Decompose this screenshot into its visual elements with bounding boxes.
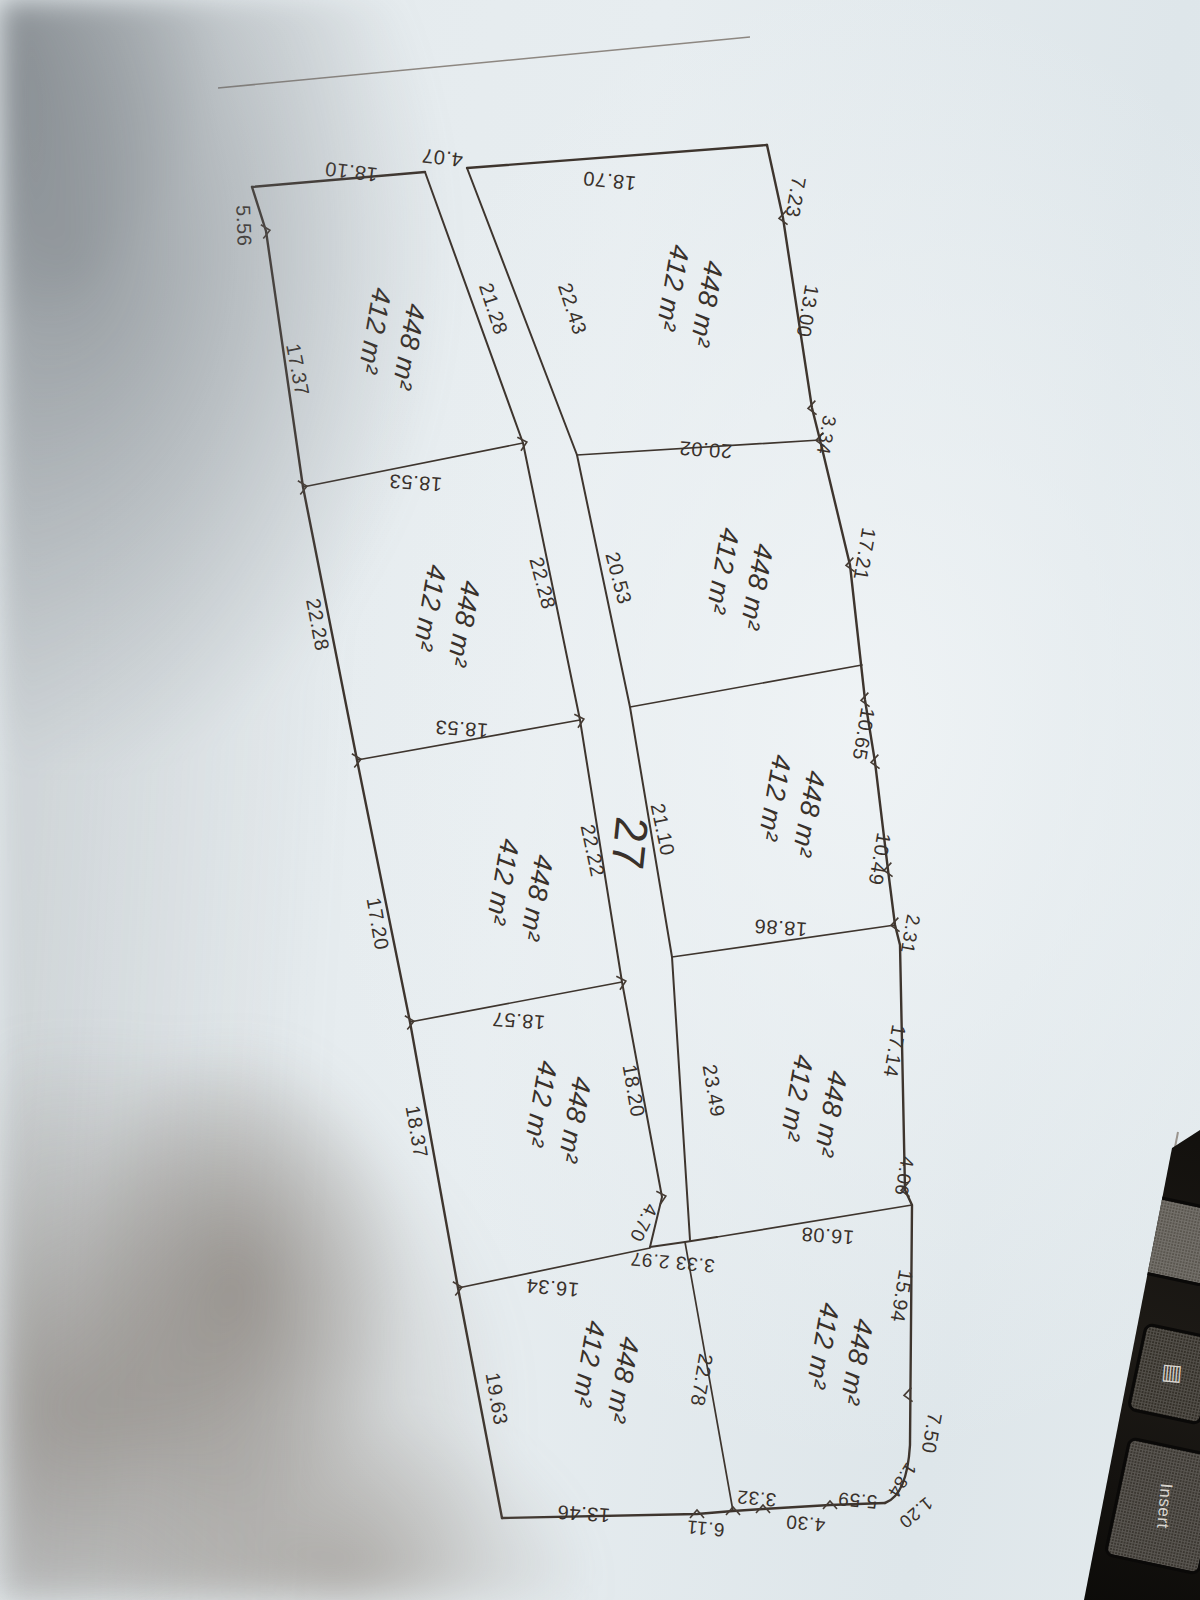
dimension-label: 10.49 xyxy=(864,831,895,887)
menu-key-icon: ▤ xyxy=(1159,1363,1187,1386)
insert-key-label: Insert xyxy=(1152,1482,1176,1529)
dimension-label: 17.37 xyxy=(282,342,314,398)
dimension-label: 22.28 xyxy=(302,597,334,653)
dimension-label: 21.28 xyxy=(475,280,512,337)
dimension-label: 17.14 xyxy=(879,1023,910,1079)
parcel-area-net-label: 412 m² xyxy=(774,1052,819,1143)
dimension-label: 18.53 xyxy=(388,470,442,496)
parcel-area-net-label: 412 m² xyxy=(518,1058,563,1149)
plan-svg: 18.104.0718.707.2313.003.3417.2110.6510.… xyxy=(0,0,1200,1600)
dimension-label: 7.50 xyxy=(917,1411,946,1456)
insert-key: Insert xyxy=(1107,1440,1200,1573)
dimension-label: 5.59 xyxy=(837,1488,878,1512)
parcel-area-net-label: 412 m² xyxy=(480,836,525,927)
dimension-label: 17.21 xyxy=(849,526,880,582)
dimension-label: 15.94 xyxy=(886,1268,917,1324)
parcel-area-net-label: 412 m² xyxy=(566,1318,611,1409)
dimension-label: 7.23 xyxy=(781,175,810,220)
dimension-label: 13.46 xyxy=(556,1501,610,1527)
upper-sheet-edge-line xyxy=(218,37,750,88)
parcel-area-net-label: 412 m² xyxy=(800,1300,845,1391)
parcel-area-net-label: 412 m² xyxy=(407,562,452,653)
photo-of-survey-plan: 18.104.0718.707.2313.003.3417.2110.6510.… xyxy=(0,0,1200,1600)
dimension-label: 22.28 xyxy=(525,555,560,612)
dimension-label: 18.37 xyxy=(401,1104,432,1160)
dimension-label: 19.63 xyxy=(481,1371,512,1427)
plan-labels: 18.104.0718.707.2313.003.3417.2110.6510.… xyxy=(232,145,946,1541)
dimension-label: 2.31 xyxy=(897,913,925,955)
dimension-label: 6.11 xyxy=(686,1516,726,1540)
dimension-label: 18.57 xyxy=(491,1008,545,1034)
dimension-label: 23.49 xyxy=(698,1063,729,1119)
dimension-label: 13.00 xyxy=(792,283,823,339)
parcel-area-net-label: 412 m² xyxy=(700,525,745,616)
dimension-label: 3.32 xyxy=(736,1486,777,1510)
parcel-area-net-label: 412 m² xyxy=(650,242,695,333)
dimension-label: 5.56 xyxy=(232,205,255,247)
dimension-label: 3.33 2.97 xyxy=(629,1248,715,1276)
dimension-label: 22.43 xyxy=(554,280,591,337)
dimension-label: 20.02 xyxy=(678,437,732,463)
dimension-label: 18.86 xyxy=(753,915,807,941)
dimension-label: 17.20 xyxy=(362,896,393,952)
dimension-label: 16.34 xyxy=(525,1275,580,1302)
road-number-label: 27 xyxy=(601,815,658,873)
dimension-label: 4.06 xyxy=(891,1155,919,1197)
dimension-label: 4.70 xyxy=(626,1201,662,1246)
dimension-label: 4.07 xyxy=(420,145,464,172)
parcel-area-net-label: 412 m² xyxy=(752,752,797,843)
dimension-label: 18.20 xyxy=(618,1063,649,1119)
menu-key: ▤ xyxy=(1130,1326,1200,1423)
dimension-label: 4.30 xyxy=(785,1511,826,1535)
dimension-label: 18.53 xyxy=(434,716,488,742)
parcel-area-net-label: 412 m² xyxy=(352,285,397,376)
dimension-label: 18.70 xyxy=(582,167,637,194)
dimension-label: 3.34 xyxy=(813,414,841,456)
dimension-label: 18.10 xyxy=(323,158,378,186)
dimension-label: 16.08 xyxy=(800,1223,854,1249)
dimension-label: 1.84 xyxy=(884,1459,921,1501)
